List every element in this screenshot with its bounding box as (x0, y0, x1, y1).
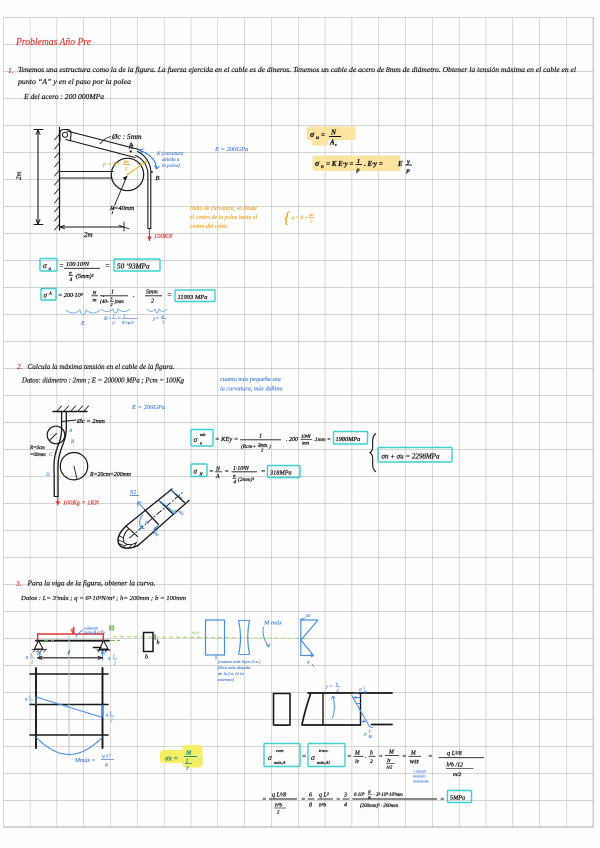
svg-text:=: = (428, 753, 432, 760)
svg-text:=: = (105, 262, 110, 270)
svg-text:σ: σ (310, 130, 315, 139)
svg-text:ρ = R+: ρ = R+ (102, 162, 121, 168)
svg-text:la polea): la polea) (162, 164, 180, 169)
svg-text:q L²/8: q L²/8 (447, 750, 463, 757)
svg-text:ρ = R +: ρ = R + (291, 216, 308, 221)
svg-text:2: 2 (151, 299, 154, 305)
svg-text:=60mm: =60mm (30, 453, 46, 458)
svg-text:L: L (112, 654, 116, 659)
svg-text:Datos : L= 3'máx ; q = 6³·10³: Datos : L= 3'máx ; q = 6³·10³N/m³ ; h= 2… (20, 595, 187, 602)
svg-text:318MPa: 318MPa (269, 470, 292, 477)
svg-text:q L²: q L² (319, 793, 329, 799)
svg-text:2: 2 (111, 302, 113, 307)
svg-text:el centro de la polea hasta e: el centro de la polea hasta el (190, 215, 257, 221)
svg-text:1980MPa: 1980MPa (336, 436, 361, 443)
svg-text:(40-: (40- (100, 298, 109, 305)
svg-text:5: 5 (111, 297, 113, 302)
svg-text:5MPa: 5MPa (450, 795, 465, 802)
svg-text:carga B el Pa: carga B el Pa (84, 631, 105, 635)
svg-text:100·10³N: 100·10³N (66, 261, 90, 268)
svg-text:=: = (209, 469, 213, 476)
svg-text:4: 4 (70, 276, 73, 283)
svg-text:2: 2 (370, 759, 373, 765)
svg-text:·(5mm)²: ·(5mm)² (75, 273, 94, 280)
svg-text:n: n (321, 165, 324, 170)
svg-text:A: A (215, 474, 220, 480)
svg-text:100KN: 100KN (154, 233, 173, 240)
svg-text:m/2: m/2 (453, 772, 462, 778)
svg-text:=: = (336, 796, 340, 803)
svg-text:1: 1 (113, 314, 115, 319)
svg-text:E: E (80, 321, 85, 327)
svg-text:2: 2 (111, 718, 113, 723)
svg-text:com: com (276, 748, 284, 753)
svg-text:h²b: h²b (319, 803, 326, 809)
svg-text:.1mm =: .1mm = (314, 437, 331, 443)
svg-text:6: 6 (309, 793, 312, 799)
svg-text:E = 200GPa: E = 200GPa (131, 404, 165, 411)
svg-text:q L²/8: q L²/8 (272, 793, 286, 799)
svg-text:)mm: )mm (114, 298, 124, 305)
svg-text:N: N (330, 129, 337, 137)
svg-text:2mm: 2mm (258, 442, 268, 447)
svg-text:100Kg = 1KN: 100Kg = 1KN (63, 500, 100, 507)
svg-text:=: = (118, 316, 122, 322)
svg-text:R=40mm: R=40mm (109, 205, 135, 212)
svg-text:(Rcm+: (Rcm+ (241, 443, 256, 450)
svg-text:=: = (167, 291, 172, 299)
svg-text:la curvatura, más dañina: la curvatura, más dañina (220, 386, 283, 393)
svg-text:A: A (48, 291, 52, 296)
svg-text:σ: σ (315, 159, 320, 168)
svg-text:=: = (440, 796, 444, 803)
svg-text:C: C (49, 452, 53, 458)
svg-text:M: M (185, 751, 192, 757)
svg-text:E: E (397, 160, 403, 168)
svg-text:2m: 2m (15, 171, 23, 180)
svg-text:A: A (128, 144, 133, 151)
svg-text:S1: S1 (130, 489, 137, 496)
svg-text:Problemas Año Pre: Problemas Año Pre (15, 37, 91, 48)
svg-text:mb: mb (200, 432, 206, 437)
svg-text:σ: σ (44, 292, 48, 300)
svg-text:=: = (302, 753, 306, 760)
svg-text:=: = (262, 796, 266, 803)
svg-text:E del acero : 200 000MPa: E del acero : 200 000MPa (23, 93, 105, 101)
svg-text:Øc = 2mm: Øc = 2mm (76, 418, 105, 425)
svg-text:debida a: debida a (162, 158, 180, 163)
svg-text:1: 1 (111, 290, 114, 296)
svg-text:b: b (145, 655, 148, 661)
svg-text:σ: σ (194, 468, 198, 476)
svg-text:=: = (321, 131, 325, 139)
svg-text:1.: 1. (8, 66, 14, 75)
svg-text:σc: σc (306, 614, 311, 619)
svg-text:= 200·10³: = 200·10³ (58, 292, 83, 299)
svg-text:resistente: resistente (413, 779, 429, 784)
svg-text:=: = (225, 469, 229, 476)
svg-text:3: 3 (343, 793, 347, 799)
svg-text:Mmáx =: Mmáx = (74, 758, 96, 764)
svg-text:=: = (261, 469, 265, 476)
svg-text:R=6cm: R=6cm (29, 446, 45, 451)
svg-text:radio de curvatura, va desde: radio de curvatura, va desde (190, 206, 257, 212)
svg-text:σ: σ (311, 753, 315, 762)
svg-text:E = 200GPa: E = 200GPa (214, 146, 248, 153)
svg-text:= KEy =: = KEy = (215, 436, 238, 443)
svg-text:{: { (284, 210, 291, 227)
svg-text:M máx: M máx (263, 620, 282, 627)
svg-text:K=: K= (103, 316, 112, 322)
svg-text:y=: y= (152, 316, 159, 322)
svg-text:8: 8 (105, 763, 108, 769)
svg-text:1: 1 (123, 314, 125, 319)
svg-text:(200mm)² · 200mm: (200mm)² · 200mm (360, 803, 398, 809)
svg-text:11993 MPa: 11993 MPa (178, 294, 208, 301)
svg-text:φc: φc (309, 212, 314, 217)
svg-text:centro del cable.: centro del cable. (190, 224, 229, 230)
svg-text:=: = (301, 796, 305, 803)
svg-text:=: = (379, 753, 383, 760)
svg-text:Wℓℓ: Wℓℓ (410, 760, 420, 766)
svg-text:. 200: . 200 (286, 437, 298, 443)
svg-text:.: . (365, 754, 367, 760)
svg-text:Para la viga de la figura, obt: Para la viga de la figura, obtener la cu… (26, 580, 155, 588)
svg-text:q L²: q L² (102, 754, 111, 760)
svg-text:m: m (93, 298, 97, 304)
svg-text:σ: σ (43, 261, 47, 270)
svg-text:2: 2 (30, 702, 32, 707)
svg-text:u: u (316, 135, 319, 141)
svg-text:2m: 2m (84, 231, 93, 239)
svg-text:h/2: h/2 (387, 765, 394, 770)
svg-text:=: = (347, 753, 351, 760)
svg-text:K (curvatura: K (curvatura (156, 152, 183, 157)
svg-text:Øc : 5mm: Øc : 5mm (111, 132, 142, 141)
svg-text:N: N (367, 791, 371, 795)
svg-text:R=20cm=200mm: R=20cm=200mm (89, 472, 131, 478)
svg-text:5mm: 5mm (146, 290, 158, 296)
svg-text:D: D (45, 472, 50, 478)
svg-text:h: h (370, 751, 373, 757)
svg-text:2.: 2. (17, 362, 23, 371)
svg-text:y: y (406, 159, 410, 166)
svg-text:σn + σu = 2298MPa: σn + σu = 2298MPa (382, 453, 440, 461)
svg-text:Calcula la máxima tensión en: Calcula la máxima tensión en el cable de… (28, 363, 175, 371)
svg-text:=: = (59, 262, 64, 270)
svg-text:ρ: ρ (356, 168, 360, 174)
svg-text:L: L (30, 653, 34, 658)
svg-text:4: 4 (344, 802, 347, 809)
svg-text:tracc: tracc (319, 748, 328, 753)
svg-text:6·10³: 6·10³ (354, 792, 365, 798)
svg-text:c: c (335, 142, 337, 147)
svg-text:3.: 3. (15, 579, 22, 588)
svg-text:Tenemos una estructura como la: Tenemos una estructura como la de la fig… (18, 66, 576, 74)
svg-text:σ(x): σ(x) (192, 630, 200, 635)
svg-text:extrema): extrema) (218, 677, 235, 682)
svg-text:h²b: h²b (275, 803, 282, 809)
svg-text:): ) (268, 443, 271, 450)
svg-text:50 ’93MPa: 50 ’93MPa (117, 263, 150, 271)
svg-text:ρ: ρ (406, 167, 411, 174)
svg-text:= K E·y =: = K E·y = (326, 160, 353, 168)
svg-text:y =: y = (325, 685, 333, 690)
svg-text:fibra más alejada: fibra más alejada (218, 665, 251, 670)
svg-text:de la f.n. (σ la: de la f.n. (σ la (218, 671, 244, 676)
svg-text:1·10³N: 1·10³N (233, 466, 250, 472)
svg-text:σ: σ (194, 435, 198, 444)
svg-text:h: h (157, 640, 160, 646)
svg-text:=: = (402, 753, 406, 760)
svg-text:R+φ/2: R+φ/2 (121, 320, 135, 325)
svg-text:. E·y =: . E·y = (364, 160, 383, 168)
svg-text:· 3²·10³·10³mm: · 3²·10³·10³mm (374, 792, 404, 798)
svg-text:B: B (156, 175, 160, 182)
svg-text:(2mm)²: (2mm)² (238, 476, 254, 483)
svg-text:(cuanto más lejos (l.a.): (cuanto más lejos (l.a.) (218, 659, 261, 664)
svg-text:h³b /12: h³b /12 (447, 763, 463, 769)
svg-text:1: 1 (259, 433, 262, 440)
svg-text:mm: mm (302, 442, 309, 447)
svg-text:σ: σ (268, 753, 272, 762)
svg-text:σx =: σx = (165, 756, 178, 763)
svg-text:8: 8 (309, 803, 312, 809)
svg-text:cuanto más pequeña sea: cuanto más pequeña sea (220, 376, 281, 383)
svg-text:2: 2 (125, 167, 128, 173)
svg-text:Datos: diámetro : 2mm ; E =: Datos: diámetro : 2mm ; E = 200000 MPa ;… (21, 378, 185, 385)
svg-text:punto “A” y en el paso por la: punto “A” y en el paso por la polea (17, 78, 132, 86)
svg-text:ℓ: ℓ (67, 650, 71, 657)
